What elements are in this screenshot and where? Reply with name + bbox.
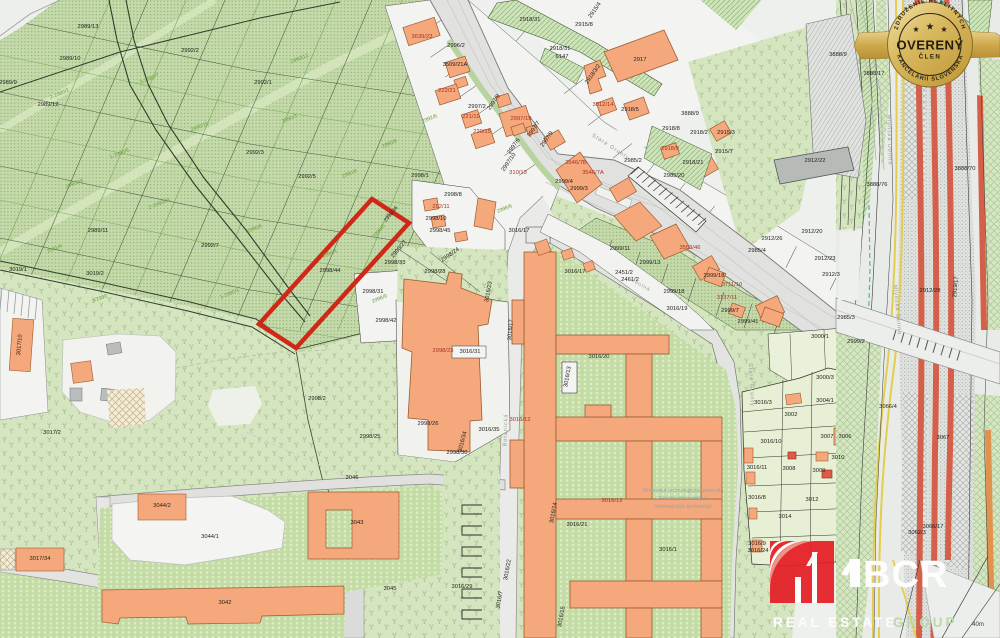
svg-text:2998/28: 2998/28 [425,269,446,275]
svg-text:2989/12: 2989/12 [38,102,59,108]
svg-text:2998/8: 2998/8 [444,192,462,198]
svg-text:REAL ESTATE: REAL ESTATE [773,615,898,630]
svg-text:3137/11: 3137/11 [717,295,738,301]
svg-text:3008: 3008 [783,466,796,472]
svg-text:2996/2: 2996/2 [447,43,465,49]
svg-text:GROUP: GROUP [893,615,958,630]
svg-text:3312/14: 3312/14 [593,102,615,108]
svg-text:2989/13: 2989/13 [78,24,99,30]
svg-text:3016/12: 3016/12 [510,417,531,423]
svg-text:3044/2: 3044/2 [153,503,171,509]
svg-text:2998/1: 2998/1 [411,173,429,179]
svg-text:3062/3: 3062/3 [908,530,926,536]
svg-text:3639/23: 3639/23 [412,34,433,40]
svg-text:2918/2: 2918/2 [690,130,708,136]
svg-text:2998/23: 2998/23 [433,348,454,354]
svg-text:2998/26: 2998/26 [418,421,439,427]
svg-text:2912/22: 2912/22 [805,158,826,164]
svg-text:2999/18: 2999/18 [664,289,685,295]
svg-text:informačných technológií: informačných technológií [654,504,712,510]
svg-text:252/11: 252/11 [432,204,449,210]
svg-text:2999/3: 2999/3 [570,186,588,192]
svg-text:Fakulta informatiky a: Fakulta informatiky a [659,496,707,502]
svg-text:2999/41: 2999/41 [738,319,759,325]
svg-text:2912/20: 2912/20 [802,229,823,235]
svg-text:221/19: 221/19 [462,114,480,120]
svg-text:2999/4: 2999/4 [555,179,574,185]
svg-text:Botanická: Botanická [502,414,509,447]
svg-text:3016/29: 3016/29 [452,584,473,590]
svg-text:3012: 3012 [806,497,819,503]
svg-text:2989/9: 2989/9 [0,80,17,86]
svg-text:2998/45: 2998/45 [430,228,451,234]
svg-text:2998/44: 2998/44 [320,268,342,274]
svg-text:3067: 3067 [937,435,950,441]
svg-text:2998/2: 2998/2 [308,396,326,402]
svg-text:2992/1: 2992/1 [254,80,272,86]
svg-text:2998/42: 2998/42 [376,318,397,324]
svg-text:3006: 3006 [839,434,852,440]
svg-text:OVERENÝ: OVERENÝ [896,38,963,53]
svg-text:2918/9: 2918/9 [661,146,679,152]
svg-text:2451/2: 2451/2 [615,270,633,276]
svg-text:3016/11: 3016/11 [747,465,768,471]
svg-text:3045: 3045 [384,586,397,592]
svg-text:3546/7B: 3546/7B [565,160,587,166]
svg-text:2917: 2917 [634,57,647,63]
svg-text:3046: 3046 [346,475,359,481]
svg-text:2918/5: 2918/5 [621,107,639,113]
svg-text:3007: 3007 [821,434,834,440]
svg-text:3016/19: 3016/19 [667,306,688,312]
svg-text:40m: 40m [972,622,984,628]
svg-text:3016/24: 3016/24 [748,548,770,554]
svg-text:3888/9: 3888/9 [681,111,699,117]
svg-text:2997/19: 2997/19 [511,116,532,122]
svg-text:3546/7A: 3546/7A [582,170,604,176]
svg-text:2918/31: 2918/31 [550,46,571,52]
svg-text:222/21: 222/21 [438,88,456,94]
svg-text:2912/28: 2912/28 [920,288,941,294]
svg-text:2992/3: 2992/3 [246,150,264,156]
svg-text:2998/31: 2998/31 [363,289,384,295]
svg-text:2999/18: 2999/18 [704,273,725,279]
svg-text:3016/12: 3016/12 [602,498,623,504]
svg-text:2985/20: 2985/20 [664,173,685,179]
svg-text:3016/10: 3016/10 [761,439,782,445]
svg-text:3010: 3010 [832,455,845,461]
svg-text:ČLEN: ČLEN [919,54,941,61]
svg-text:3000/3: 3000/3 [816,375,834,381]
svg-text:3888/17: 3888/17 [864,71,885,77]
svg-text:2918/21: 2918/21 [683,160,704,166]
svg-text:3004/1: 3004/1 [816,398,834,404]
svg-text:2989/10: 2989/10 [60,56,81,62]
svg-text:3888/70: 3888/70 [955,166,976,172]
svg-text:BCR: BCR [863,554,948,596]
svg-text:2912/23: 2912/23 [815,256,836,262]
svg-text:3888/9: 3888/9 [829,52,847,58]
svg-text:3016/20: 3016/20 [589,354,610,360]
svg-text:6147: 6147 [556,54,569,60]
svg-text:3017/34: 3017/34 [30,556,52,562]
svg-text:3016/17: 3016/17 [565,269,586,275]
svg-text:3042: 3042 [219,600,232,606]
svg-text:3016/21: 3016/21 [567,522,588,528]
svg-text:2989/11: 2989/11 [88,228,109,234]
svg-text:3044/1: 3044/1 [201,534,219,540]
svg-text:3066/4: 3066/4 [879,404,898,410]
svg-text:3016/1: 3016/1 [659,547,677,553]
svg-text:3014: 3014 [779,514,793,520]
svg-text:3017/2: 3017/2 [43,430,61,436]
svg-text:3016/31: 3016/31 [460,349,481,355]
svg-text:3000/1: 3000/1 [811,334,829,340]
svg-text:2912/3: 2912/3 [822,272,840,278]
svg-text:2998/10: 2998/10 [426,216,447,222]
svg-text:2912/26: 2912/26 [762,236,783,242]
svg-text:2915/8: 2915/8 [575,22,593,28]
svg-text:3509/21A: 3509/21A [443,62,468,68]
svg-text:2992/2: 2992/2 [181,48,199,54]
svg-text:3016/8: 3016/8 [748,495,766,501]
svg-text:2999/11: 2999/11 [610,246,631,252]
svg-text:310/13: 310/13 [509,170,527,176]
svg-text:3043: 3043 [351,520,364,526]
svg-text:2998/30: 2998/30 [447,450,468,456]
svg-text:2999/13: 2999/13 [640,260,661,266]
svg-text:2915/7: 2915/7 [715,149,733,155]
svg-text:3711/10: 3711/10 [722,282,743,288]
svg-text:2998/25: 2998/25 [360,434,381,440]
svg-text:2985/3: 2985/3 [837,315,855,321]
svg-text:3009: 3009 [813,468,826,474]
svg-text:2992/5: 2992/5 [298,174,316,180]
svg-text:Slovenská technologická univer: Slovenská technologická univerzita [643,488,724,494]
svg-text:3016/3: 3016/3 [754,400,772,406]
svg-text:2915/3: 2915/3 [717,130,735,136]
svg-text:2999/7: 2999/7 [721,308,739,314]
svg-text:3888/76: 3888/76 [867,182,888,188]
svg-text:3016/9: 3016/9 [748,541,766,547]
svg-text:2998/33: 2998/33 [385,260,406,266]
svg-text:3002: 3002 [785,412,798,418]
svg-text:2992/7: 2992/7 [201,243,219,249]
svg-text:3019/2: 3019/2 [86,271,104,277]
svg-text:2985/4: 2985/4 [748,248,767,254]
svg-text:3016/17: 3016/17 [509,228,530,234]
svg-text:2918/31: 2918/31 [520,17,541,23]
svg-text:3553/46: 3553/46 [680,245,701,251]
svg-text:2999/2: 2999/2 [847,339,865,345]
svg-text:3019/1: 3019/1 [9,267,27,273]
svg-text:2997/2: 2997/2 [468,104,486,110]
svg-text:3016/35: 3016/35 [479,427,500,433]
svg-text:2918/8: 2918/8 [662,126,680,132]
svg-text:220/15: 220/15 [473,129,491,135]
